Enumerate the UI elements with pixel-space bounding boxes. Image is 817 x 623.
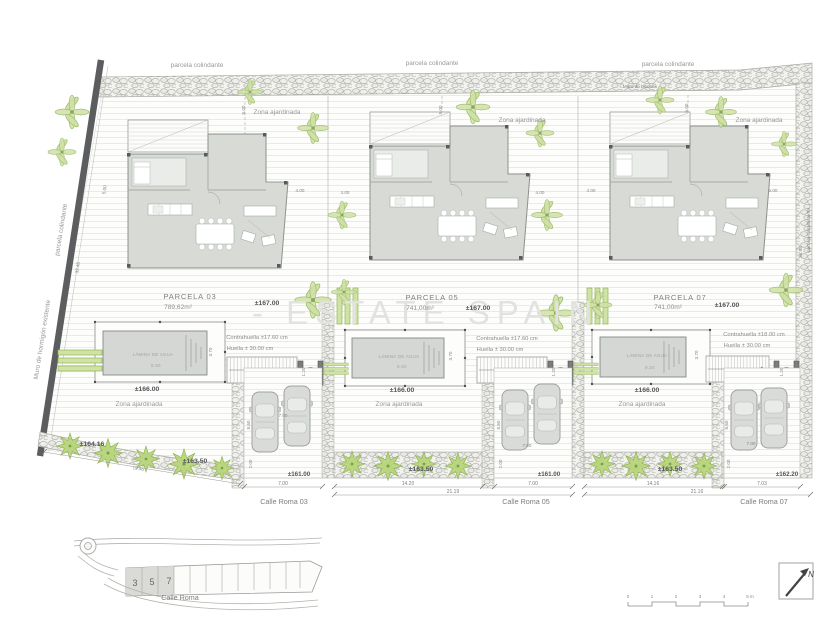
dim-gate: 1.20 [779, 367, 784, 376]
left-boundary-label: parcela colindante [54, 203, 69, 257]
dim-drive-width: 7.00 [523, 443, 532, 448]
dim-drive-depth: 8.60 [724, 420, 729, 429]
dim-sidewalk: 2.00 [248, 459, 253, 468]
right-boundary-label: parcela colindante 09 [806, 208, 811, 252]
pool-deck-level: ±166.00 [135, 386, 160, 393]
pool-width: 3.70 [208, 347, 213, 356]
pool-width: 3.70 [448, 351, 453, 360]
inset-location-map: 3 5 7 Calle Roma [74, 538, 322, 610]
dim-drive-width: 7.00 [279, 413, 288, 418]
pool-label: LÁMINA DE AGUA [133, 352, 174, 357]
garden-strip-level: ±163.50 [409, 466, 434, 473]
dim-setback-side: 4.00 [296, 188, 305, 193]
inset-parcel-number-3: 3 [132, 578, 137, 588]
street-name: Calle Roma 03 [260, 497, 308, 506]
street-level: ±161.00 [538, 471, 561, 478]
stair-note-1: Contrahuella ±17.60 cm [226, 335, 288, 341]
dim-setback-top: 5.00 [438, 105, 443, 114]
scale-tick-4: 4 [723, 594, 726, 599]
dim-street-front: 7.00 [278, 481, 288, 487]
garden-top-label: Zona ajardinada [254, 109, 301, 116]
parcel-name: PARCELA 07 [653, 293, 706, 302]
stair-note-1: Contrahuella ±17.60 cm [476, 336, 538, 342]
stair-note-1: Contrahuella ±18.00 cm [723, 332, 785, 338]
pool-label: LÁMINA DE AGUA [627, 353, 668, 358]
garden-top-label: Zona ajardinada [499, 117, 546, 124]
scale-bar: 0 1 2 3 4 5 m [627, 594, 754, 606]
garden-bottom-label: Zona ajardinada [376, 401, 423, 408]
inset-parcel-number-5: 5 [149, 577, 154, 587]
top-boundary-label-2: parcela colindante [406, 60, 459, 67]
pool-length: 9.20 [645, 365, 655, 370]
dim-setback-side-left: 4.00 [341, 190, 350, 195]
house-parcela-05 [369, 112, 530, 260]
stair-note-2: Huella ± 30.00 cm [724, 343, 771, 349]
stair-note-2: Huella ± 30.00 cm [227, 346, 274, 352]
top-wall-note: Muro de bloques [623, 84, 658, 89]
planter-gate-parcela-03 [324, 363, 348, 375]
parcel-level: ±167.00 [466, 305, 491, 312]
inset-parcel-number-7: 7 [166, 576, 171, 586]
garden-bottom-label: Zona ajardinada [116, 401, 163, 408]
street-level: ±161.00 [288, 471, 311, 478]
parcel-area: 741,00m² [406, 305, 435, 312]
dim-sidewalk: 2.00 [498, 459, 503, 468]
dim-frontage: 19.46 [132, 465, 145, 472]
parcel-name: PARCELA 05 [405, 293, 458, 302]
pool-label: LÁMINA DE AGUA [379, 354, 420, 359]
dim-garden-front: 14.16 [647, 481, 660, 487]
dim-total-front: 21.16 [691, 489, 704, 495]
dim-setback-top: 5.00 [241, 105, 246, 114]
dim-street-front: 7.00 [528, 481, 538, 487]
garden-top-label: Zona ajardinada [736, 117, 783, 124]
dim-sidewalk: 2.00 [726, 459, 731, 468]
dim-garden-front: 14.20 [402, 481, 415, 487]
car-icon [759, 388, 790, 448]
car-icon [500, 390, 531, 450]
dim-drive-depth: 8.60 [496, 420, 501, 429]
street-name: Calle Roma 05 [502, 497, 550, 506]
scale-tick-3: 3 [699, 594, 702, 599]
top-boundary-label-1: parcela colindante [171, 62, 224, 69]
north-label: N [808, 570, 814, 579]
parcel-area: 789,62m² [164, 304, 193, 311]
parcel-level: ±167.00 [255, 300, 280, 307]
scale-tick-0: 0 [627, 594, 630, 599]
car-icon [250, 392, 281, 452]
street-name: Calle Roma 07 [740, 497, 788, 506]
street-level: ±162.20 [776, 471, 799, 478]
parcel-name: PARCELA 03 [163, 292, 216, 301]
scale-tick-5: 5 m [746, 594, 754, 599]
dim-setback-top: 5.00 [684, 103, 689, 112]
dim-setback-side-left: 4.00 [587, 188, 596, 193]
parcel-area: 741,00m² [654, 304, 683, 311]
inset-street-label: Calle Roma [161, 593, 199, 602]
garden-strip-level: ±163.50 [183, 458, 208, 465]
dim-gate: 1.20 [551, 367, 556, 376]
dim-drive-depth: 8.60 [246, 420, 251, 429]
dim-setback-side-right: 5.00 [769, 188, 778, 193]
top-boundary-label-3: parcela colindante [642, 61, 695, 68]
parcel-level: ±167.00 [715, 302, 740, 309]
garden-bottom-label: Zona ajardinada [619, 401, 666, 408]
pool-length: 8.50 [397, 364, 407, 369]
pool-length: 8.50 [151, 363, 161, 368]
level-front-left: ±164.16 [80, 441, 105, 448]
north-arrow-icon: N [779, 563, 814, 599]
scale-tick-2: 2 [675, 594, 678, 599]
stair-note-2: Huella ± 30.00 cm [477, 347, 524, 353]
dim-drive-width: 7.00 [747, 441, 756, 446]
pool-deck-level: ±166.00 [635, 387, 660, 394]
garden-strip-level: ±163.50 [658, 466, 683, 473]
pool-width: 3.70 [694, 350, 699, 359]
right-dim: 36.98 [798, 246, 803, 258]
scale-tick-1: 1 [651, 594, 654, 599]
site-plan-drawing: - ESTATE SPAIN parcela colindante parcel… [0, 0, 817, 623]
house-parcela-07 [609, 112, 770, 260]
dim-total-front: 21.19 [447, 489, 460, 495]
car-icon [532, 384, 563, 444]
left-wall-label: Muro de hormigón existente [33, 299, 53, 380]
house-parcela-03 [127, 120, 288, 268]
driveway-wall-parcela-05 [482, 368, 494, 488]
planter-gate-parcela-05 [574, 363, 598, 375]
pool-deck-level: ±166.00 [390, 387, 415, 394]
dim-street-front: 7.03 [757, 481, 767, 487]
site-plan-sheet: - ESTATE SPAIN parcela colindante parcel… [0, 0, 817, 623]
dim-setback-side-right: 4.00 [536, 190, 545, 195]
planter-parcela-03 [58, 350, 102, 371]
dim-gate: 1.20 [301, 367, 306, 376]
